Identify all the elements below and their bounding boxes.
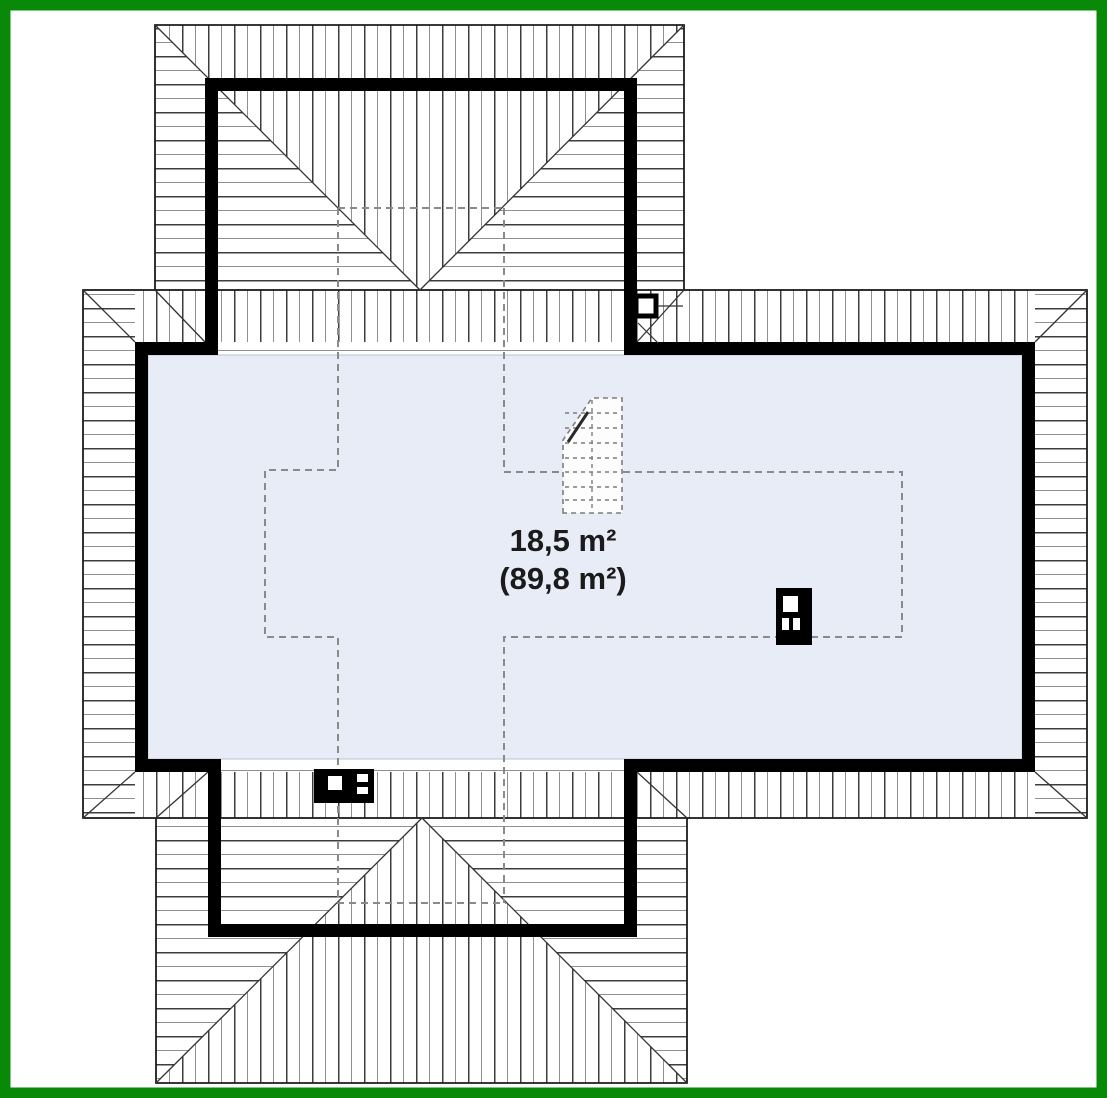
top-wing-neck [218,342,624,356]
chimney-bottom-flue-small-2 [357,787,368,794]
chimney-right-flue-large [783,596,798,612]
main-roof-bottom-strip [135,772,1035,818]
area-label-room: 18,5 m² [510,523,617,558]
chimney-bottom-flue-small-1 [357,774,368,782]
floor-plan-canvas: 18,5 m² (89,8 m²) [0,0,1107,1098]
chimney-bottom-flue-large [328,776,342,790]
main-roof-right-strip [1035,290,1087,818]
bottom-wing-neck [221,758,624,772]
area-label-total: (89,8 m²) [499,561,626,596]
main-roof-top-strip [135,290,1035,342]
chimney-right-flue-small-1 [782,618,789,630]
chimney-top-body [636,296,656,316]
chimney-right-flue-small-2 [793,618,800,630]
attic-floor-plan-drawing: 18,5 m² (89,8 m²) [0,0,1107,1098]
main-roof-left-strip [83,290,135,818]
chimney-right [776,588,812,645]
chimney-bottom [314,769,374,803]
